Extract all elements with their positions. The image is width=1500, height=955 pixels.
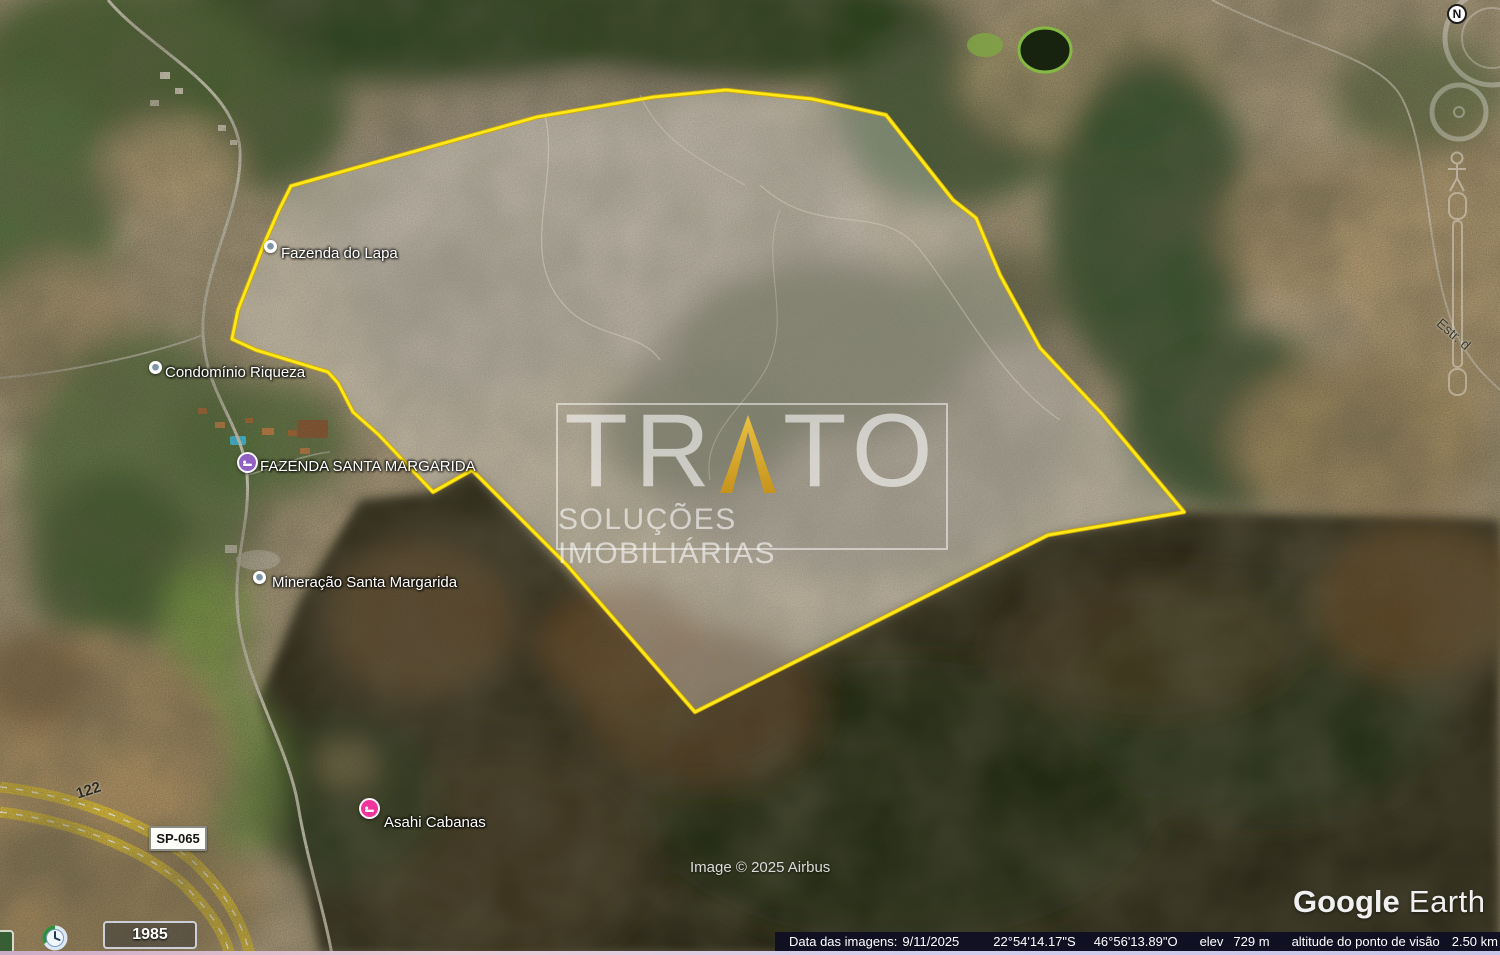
google-earth-logo-bold: Google	[1293, 884, 1400, 919]
imagery-date-value: 9/11/2025	[902, 934, 959, 949]
place-pin-icon[interactable]	[264, 240, 277, 253]
imagery-date-label: Data das imagens:	[789, 934, 897, 949]
google-earth-logo-light: Earth	[1400, 884, 1486, 919]
place-pin-icon[interactable]	[149, 361, 162, 374]
google-earth-viewport: Fazenda do Lapa Condomínio Riqueza FAZEN…	[0, 0, 1500, 955]
eye-altitude-label: altitude do ponto de visão	[1292, 934, 1440, 949]
place-label-mineracao-santa-margarida[interactable]: Mineração Santa Margarida	[272, 574, 457, 591]
lodging-pin-icon[interactable]	[237, 452, 258, 473]
clock-history-icon[interactable]	[41, 924, 69, 952]
latitude-value: 22°54'14.17"S	[993, 934, 1075, 949]
eye-altitude-value: 2.50 km	[1452, 934, 1498, 949]
lodging-pin-icon[interactable]	[359, 798, 380, 819]
status-bar: Data das imagens: 9/11/2025 22°54'14.17"…	[775, 932, 1500, 951]
elevation-value: 729 m	[1233, 934, 1269, 949]
place-label-condominio-riqueza[interactable]: Condomínio Riqueza	[165, 364, 305, 381]
place-label-asahi-cabanas[interactable]: Asahi Cabanas	[384, 814, 486, 831]
google-earth-logo: Google Earth	[1293, 884, 1486, 920]
north-compass-icon[interactable]: N	[1447, 4, 1467, 24]
road-shield-sp065: SP-065	[149, 826, 207, 851]
satellite-map[interactable]	[0, 0, 1500, 955]
place-label-fazenda-do-lapa[interactable]: Fazenda do Lapa	[281, 245, 398, 262]
place-label-fazenda-santa-margarida[interactable]: FAZENDA SANTA MARGARIDA	[260, 458, 476, 475]
longitude-value: 46°56'13.89"O	[1094, 934, 1178, 949]
place-pin-icon[interactable]	[253, 571, 266, 584]
elevation-label: elev	[1200, 934, 1224, 949]
imagery-copyright: Image © 2025 Airbus	[690, 859, 830, 876]
imagery-year-badge[interactable]: 1985	[103, 921, 197, 949]
taskbar-edge-strip	[0, 951, 1500, 955]
